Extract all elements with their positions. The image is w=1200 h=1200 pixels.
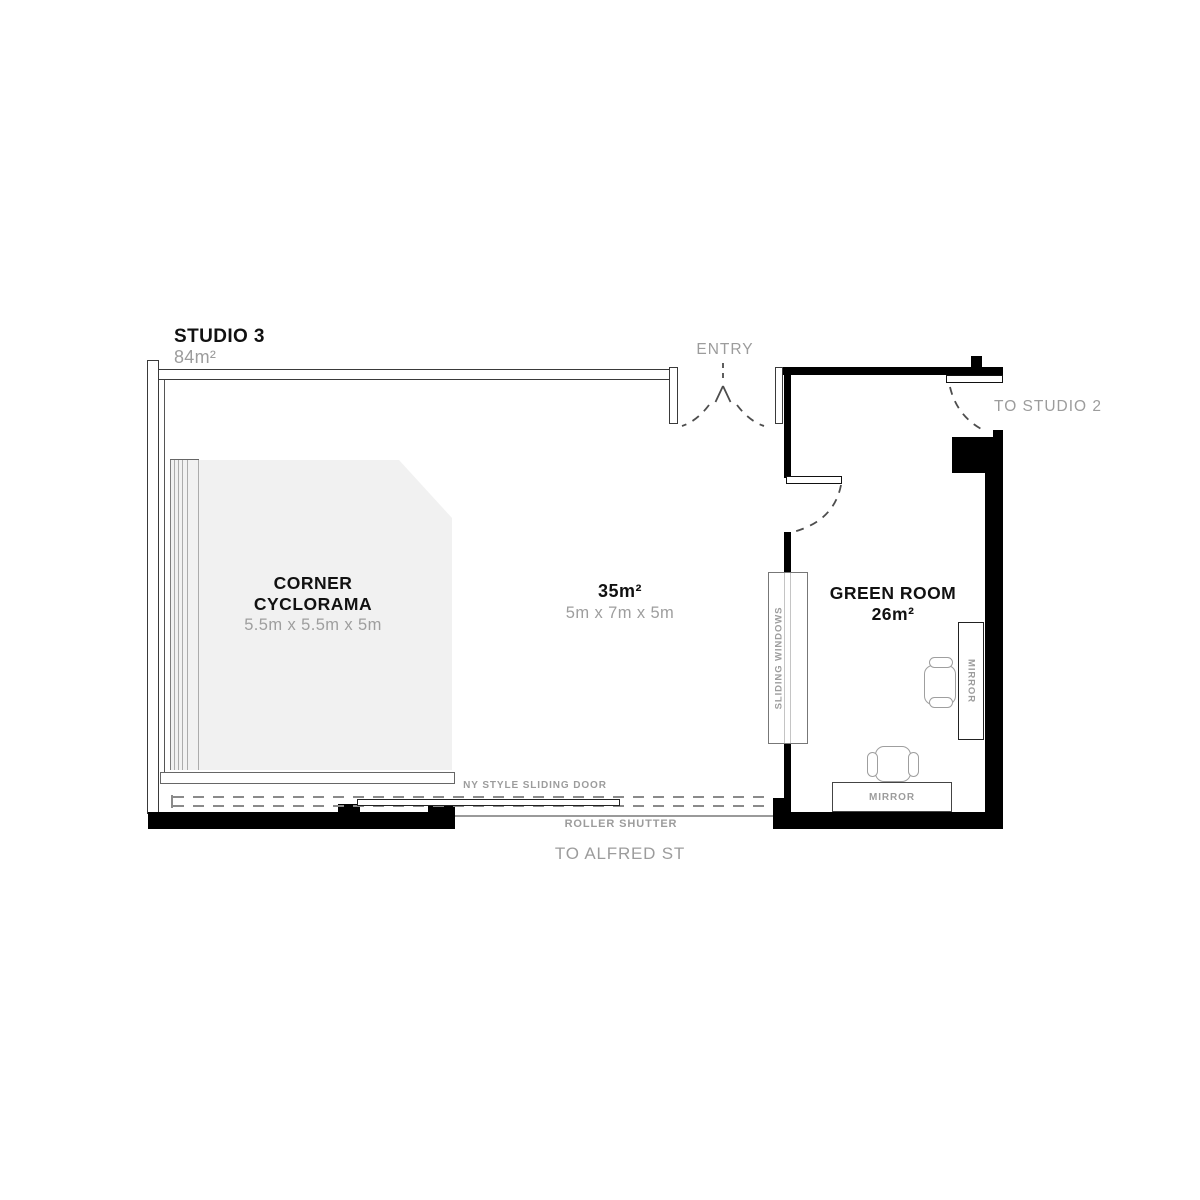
wall-right-pier	[952, 437, 1003, 473]
studio-2-door-leaf	[946, 375, 1003, 383]
green-room-door-swing	[793, 485, 841, 532]
cyclorama-hatch	[170, 460, 171, 770]
wall-right	[985, 472, 1003, 829]
entry-jamb-left	[669, 367, 678, 424]
studio-area: 84m²	[174, 347, 216, 368]
wall-green-room-left-lower	[784, 742, 791, 812]
cyclorama-hatch	[182, 460, 183, 770]
green-room-door-leaf	[786, 476, 842, 484]
to-studio-2-label: TO STUDIO 2	[994, 398, 1102, 416]
mirror-bottom: MIRROR	[832, 782, 952, 812]
entry-door-swing-chevron	[716, 386, 731, 402]
studio-title: STUDIO 3	[174, 326, 265, 348]
wall-left-inner-line	[164, 371, 165, 772]
main-area-dimensions: 5m x 7m x 5m	[566, 604, 674, 623]
green-room-title: GREEN ROOM	[830, 583, 957, 604]
entry-jamb-right	[775, 367, 783, 424]
entry-label: ENTRY	[696, 341, 753, 359]
wall-left	[147, 360, 159, 814]
cyclorama-title-line2: CYCLORAMA	[254, 594, 372, 615]
wall-top-tab	[971, 356, 982, 368]
cyclorama-hatch	[187, 460, 188, 770]
studio-2-door-swing	[950, 387, 985, 431]
sliding-windows-label: SLIDING WINDOWS	[774, 607, 785, 710]
cyclorama-hatch	[198, 460, 199, 770]
sliding-windows-mullion	[790, 573, 791, 743]
wall-top	[158, 369, 670, 380]
wall-bottom-left	[148, 812, 455, 829]
cyclorama-dimensions: 5.5m x 5.5m x 5m	[244, 616, 382, 635]
roller-shutter-label: ROLLER SHUTTER	[565, 818, 678, 830]
ny-sliding-door-label: NY STYLE SLIDING DOOR	[463, 780, 607, 791]
cyclorama-title-line1: CORNER	[274, 573, 353, 594]
mirror-bottom-label: MIRROR	[869, 792, 915, 803]
sliding-door-leaf	[357, 799, 620, 806]
entry-door-swing-right-arc	[737, 405, 764, 426]
wall-green-room-bottom	[773, 812, 1003, 829]
wall-green-room-top	[783, 367, 1003, 375]
wall-right-pier-tab	[993, 430, 1003, 438]
cyclorama-hatch	[174, 460, 175, 770]
mirror-side-label: MIRROR	[966, 659, 977, 703]
entry-door-swing-left-arc	[682, 405, 709, 426]
main-area-label: 35m²	[598, 581, 642, 602]
cyclorama-base-band	[160, 772, 455, 784]
green-room-area: 26m²	[872, 604, 915, 625]
ny-sliding-door-track-end	[171, 795, 173, 808]
wall-green-room-left-upper	[784, 375, 791, 478]
cyclorama-region	[170, 460, 452, 770]
floor-plan: SLIDING WINDOWS MIRROR MIRROR STUDIO 3 8…	[0, 0, 1200, 1200]
cyclorama-hatch-cap	[170, 459, 199, 460]
cyclorama-hatch	[178, 460, 179, 770]
to-alfred-st-label: TO ALFRED ST	[555, 844, 685, 864]
wall-green-room-left-mid	[784, 532, 791, 574]
